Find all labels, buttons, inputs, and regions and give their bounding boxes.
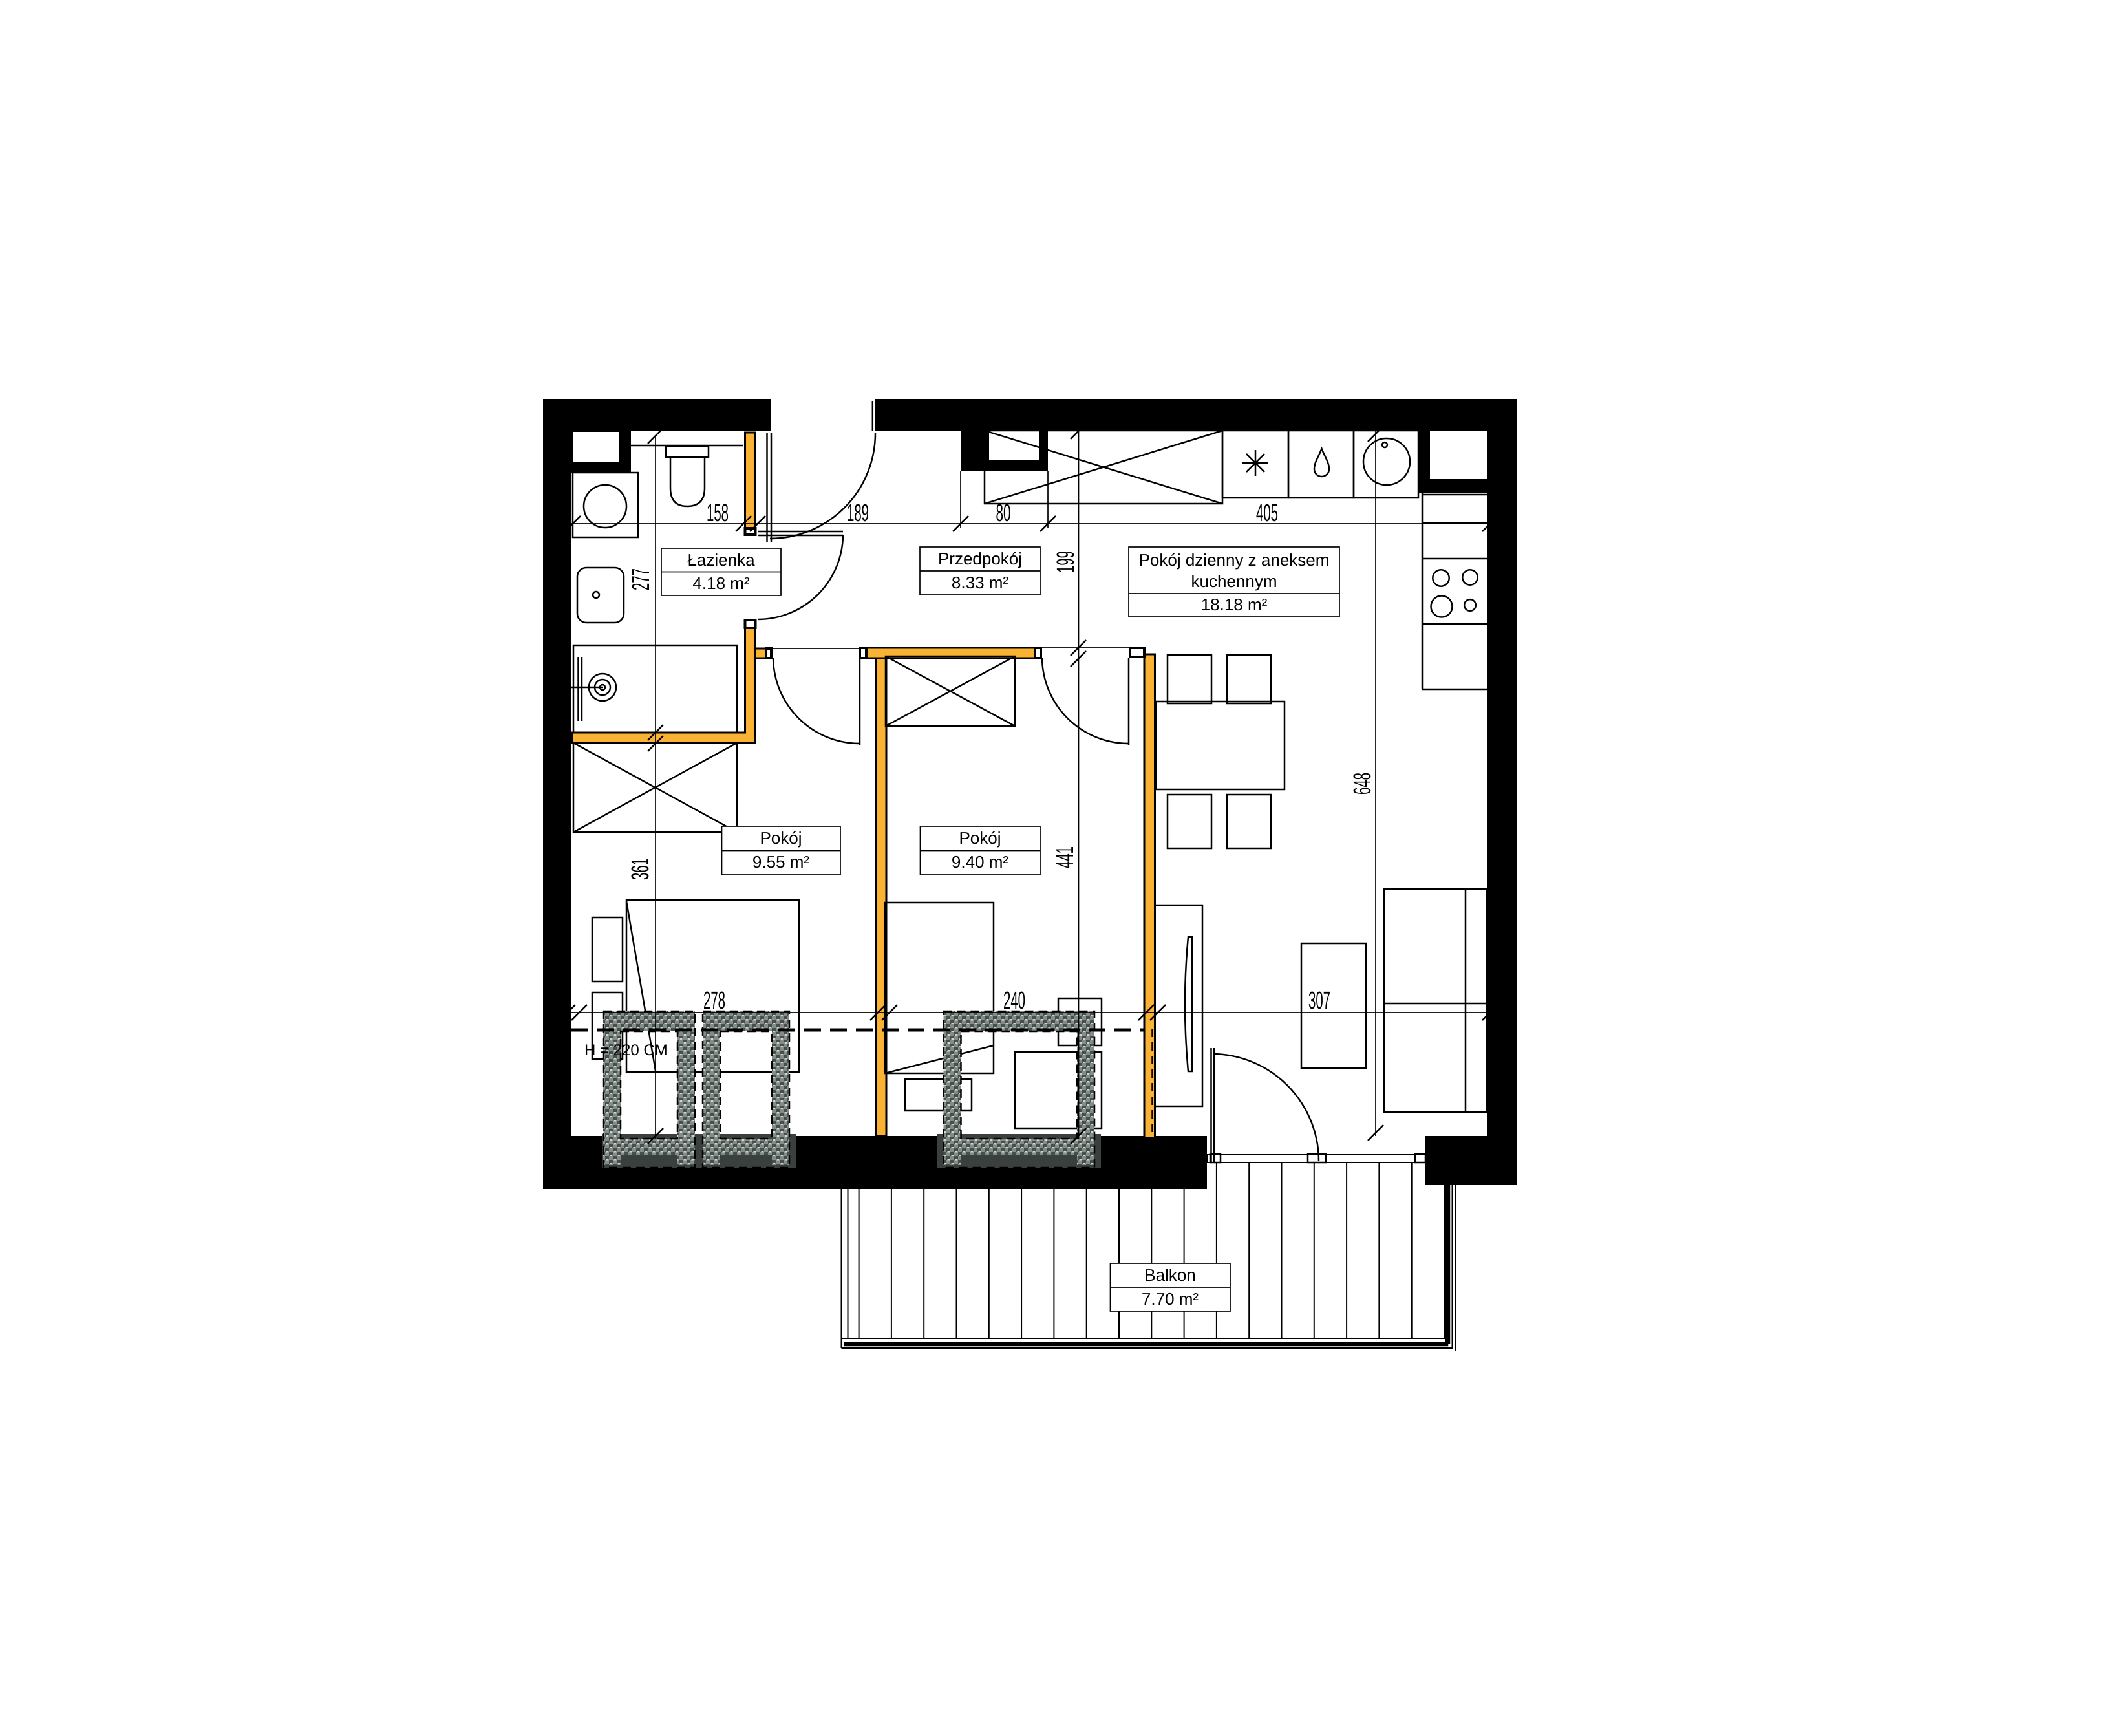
svg-text:277: 277 [628,568,655,590]
svg-text:Pokój: Pokój [959,828,1001,848]
svg-text:158: 158 [707,500,729,527]
svg-text:Pokój dzienny z aneksem: Pokój dzienny z aneksem [1139,550,1330,570]
svg-text:18.18 m²: 18.18 m² [1201,595,1268,614]
svg-text:405: 405 [1256,500,1278,527]
svg-text:307: 307 [1308,987,1330,1014]
svg-text:189: 189 [847,500,869,527]
svg-text:Przedpokój: Przedpokój [938,549,1022,568]
svg-text:278: 278 [703,987,725,1014]
svg-text:441: 441 [1052,846,1079,868]
svg-text:Łazienka: Łazienka [687,550,755,570]
svg-text:9.40 m²: 9.40 m² [952,852,1008,872]
svg-text:361: 361 [627,858,654,880]
svg-text:Balkon: Balkon [1144,1265,1196,1285]
svg-text:kuchennym: kuchennym [1191,572,1277,591]
svg-text:8.33 m²: 8.33 m² [952,573,1008,592]
svg-text:9.55 m²: 9.55 m² [752,852,809,872]
svg-text:H = 220 CM: H = 220 CM [584,1042,668,1059]
svg-text:Pokój: Pokój [760,828,802,848]
svg-text:240: 240 [1003,987,1025,1014]
svg-text:4.18 m²: 4.18 m² [692,573,749,593]
svg-text:199: 199 [1052,551,1080,573]
svg-text:648: 648 [1349,773,1376,795]
svg-text:80: 80 [996,500,1011,527]
svg-text:7.70 m²: 7.70 m² [1142,1289,1199,1309]
